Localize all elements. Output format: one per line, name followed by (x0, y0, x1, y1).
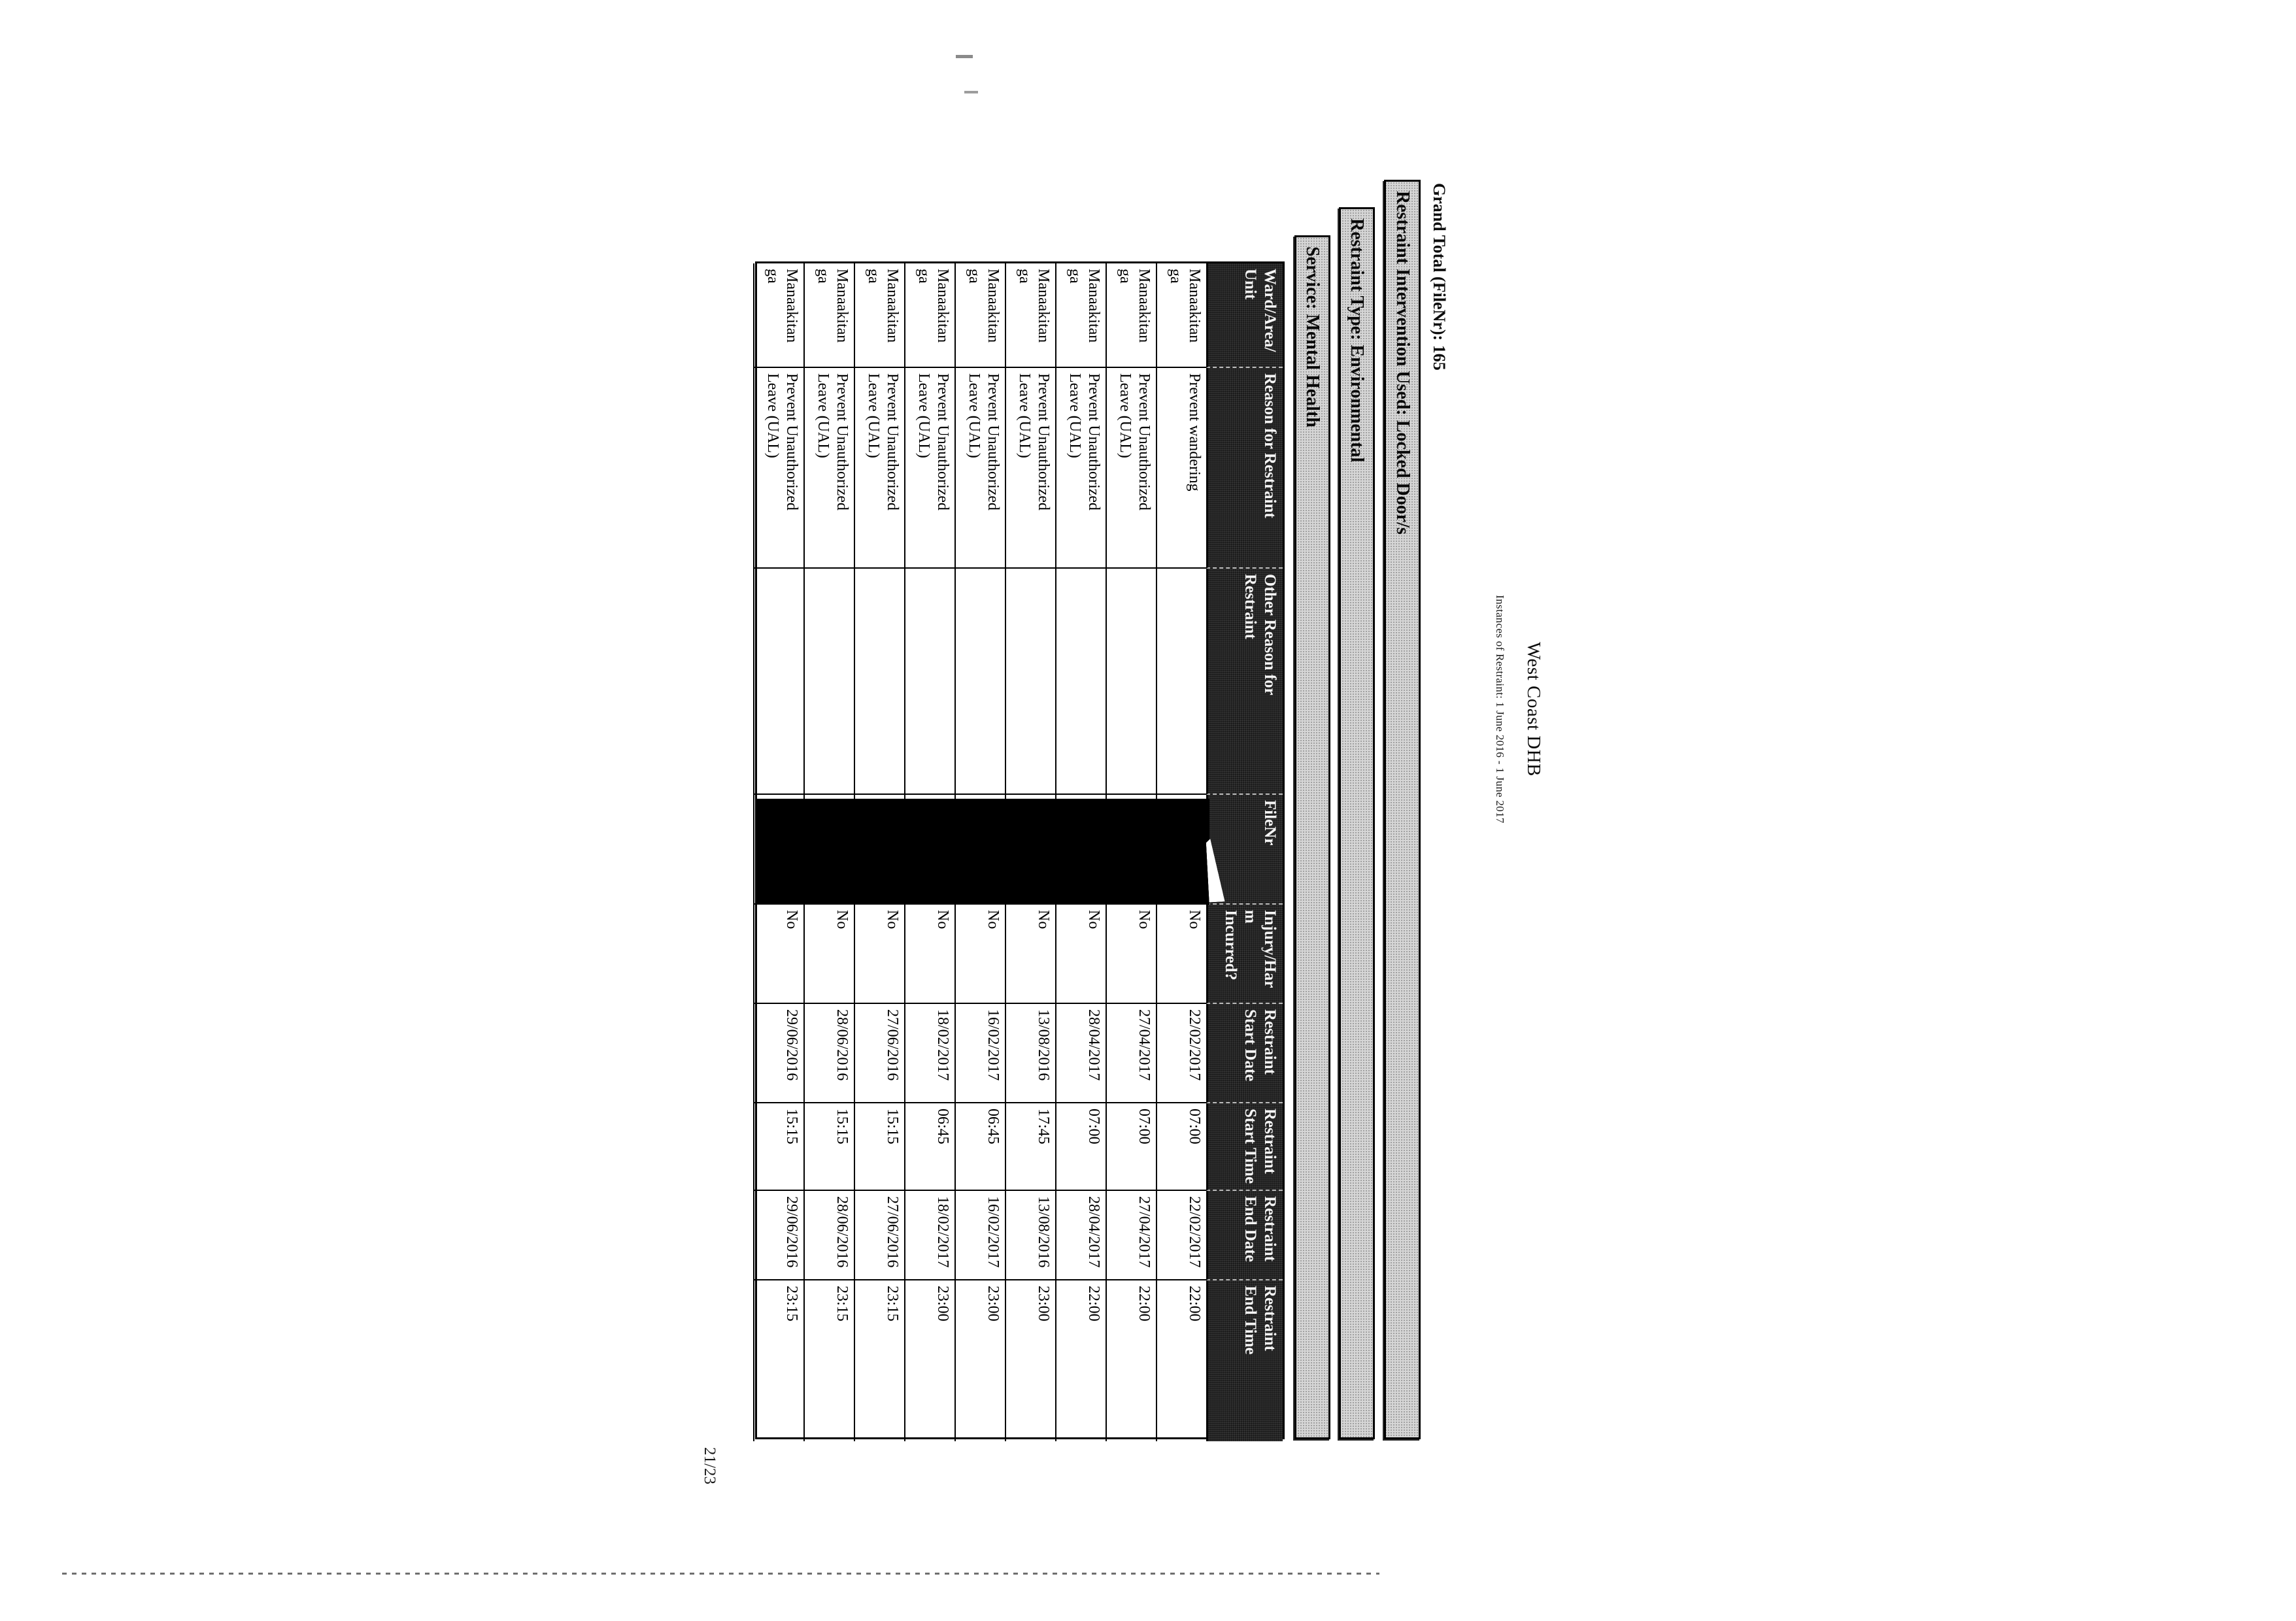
scanned-page: West Coast DHB Instances of Restraint: 1… (0, 0, 2296, 1621)
cell-ward-row4: Manaakitan ga (1005, 263, 1055, 368)
column-header-injury: Injury/Har m Incurred? (1206, 905, 1283, 1004)
column-header-reason: Reason for Restraint (1206, 368, 1283, 569)
cell-start_time-row2: 07:00 (1106, 1103, 1156, 1191)
grand-total-label: Grand Total (FileNr): 165 (1429, 183, 1449, 371)
cell-end_date-row8: 28/06/2016 (803, 1191, 854, 1280)
scan-artifact-dash (956, 55, 973, 58)
column-header-start_time: Restraint Start Time (1206, 1103, 1283, 1191)
cell-end_time-row8: 23:15 (803, 1280, 854, 1441)
column-header-end_date: Restraint End Date (1206, 1191, 1283, 1280)
cell-start_time-row7: 15:15 (854, 1103, 904, 1191)
cell-ward-row7: Manaakitan ga (854, 263, 904, 368)
cell-start_date-row4: 13/08/2016 (1005, 1004, 1055, 1103)
cell-other_reason-row5 (954, 569, 1005, 795)
cell-other_reason-row4 (1005, 569, 1055, 795)
cell-end_date-row1: 22/02/2017 (1156, 1191, 1206, 1280)
document-subtitle: Instances of Restraint: 1 June 2016 - 1 … (1493, 56, 1506, 1363)
cell-other_reason-row7 (854, 569, 904, 795)
cell-other_reason-row8 (803, 569, 854, 795)
column-header-end_time: Restraint End Time (1206, 1280, 1283, 1441)
cell-reason-row7: Prevent Unauthorized Leave (UAL) (854, 368, 904, 569)
group-header-service: Service: Mental Health (1294, 235, 1330, 1439)
cell-reason-row2: Prevent Unauthorized Leave (UAL) (1106, 368, 1156, 569)
cell-injury-row5: No (954, 905, 1005, 1004)
scan-artifact-dotted-line (62, 1573, 1379, 1575)
cell-end_date-row6: 18/02/2017 (904, 1191, 954, 1280)
cell-reason-row8: Prevent Unauthorized Leave (UAL) (803, 368, 854, 569)
group-header-restraint-intervention: Restraint Intervention Used: Locked Door… (1384, 180, 1421, 1439)
cell-reason-row3: Prevent Unauthorized Leave (UAL) (1055, 368, 1106, 569)
cell-ward-row3: Manaakitan ga (1055, 263, 1106, 368)
cell-injury-row7: No (854, 905, 904, 1004)
cell-start_time-row3: 07:00 (1055, 1103, 1106, 1191)
cell-end_time-row4: 23:00 (1005, 1280, 1055, 1441)
cell-injury-row1: No (1156, 905, 1206, 1004)
cell-other_reason-row9 (753, 569, 803, 795)
cell-ward-row9: Manaakitan ga (753, 263, 803, 368)
cell-injury-row9: No (753, 905, 803, 1004)
column-header-start_date: Restraint Start Date (1206, 1004, 1283, 1103)
cell-ward-row8: Manaakitan ga (803, 263, 854, 368)
cell-start_time-row4: 17:45 (1005, 1103, 1055, 1191)
document-title: West Coast DHB (1523, 56, 1544, 1363)
cell-other_reason-row6 (904, 569, 954, 795)
cell-end_date-row2: 27/04/2017 (1106, 1191, 1156, 1280)
cell-other_reason-row3 (1055, 569, 1106, 795)
cell-end_date-row9: 29/06/2016 (753, 1191, 803, 1280)
cell-end_time-row5: 23:00 (954, 1280, 1005, 1441)
cell-end_time-row6: 23:00 (904, 1280, 954, 1441)
redaction-block (757, 799, 1209, 905)
column-header-other_reason: Other Reason for Restraint (1206, 569, 1283, 795)
cell-start_date-row6: 18/02/2017 (904, 1004, 954, 1103)
cell-end_date-row5: 16/02/2017 (954, 1191, 1005, 1280)
cell-reason-row5: Prevent Unauthorized Leave (UAL) (954, 368, 1005, 569)
cell-start_date-row7: 27/06/2016 (854, 1004, 904, 1103)
page-number: 21/23 (700, 1447, 718, 1484)
cell-ward-row6: Manaakitan ga (904, 263, 954, 368)
cell-other_reason-row2 (1106, 569, 1156, 795)
cell-injury-row8: No (803, 905, 854, 1004)
cell-start_time-row8: 15:15 (803, 1103, 854, 1191)
cell-injury-row2: No (1106, 905, 1156, 1004)
cell-end_date-row7: 27/06/2016 (854, 1191, 904, 1280)
cell-injury-row6: No (904, 905, 954, 1004)
column-header-ward: Ward/Area/ Unit (1206, 263, 1283, 368)
cell-reason-row4: Prevent Unauthorized Leave (UAL) (1005, 368, 1055, 569)
scan-artifact-dash (964, 91, 978, 93)
cell-start_date-row8: 28/06/2016 (803, 1004, 854, 1103)
cell-start_time-row5: 06:45 (954, 1103, 1005, 1191)
cell-start_time-row6: 06:45 (904, 1103, 954, 1191)
cell-end_time-row9: 23:15 (753, 1280, 803, 1441)
cell-reason-row1: Prevent wandering (1156, 368, 1206, 569)
cell-start_date-row3: 28/04/2017 (1055, 1004, 1106, 1103)
cell-reason-row9: Prevent Unauthorized Leave (UAL) (753, 368, 803, 569)
cell-start_date-row1: 22/02/2017 (1156, 1004, 1206, 1103)
group-header-restraint-type: Restraint Type: Environmental (1339, 207, 1375, 1439)
cell-ward-row1: Manaakitan ga (1156, 263, 1206, 368)
cell-injury-row4: No (1005, 905, 1055, 1004)
cell-start_date-row2: 27/04/2017 (1106, 1004, 1156, 1103)
document-content-rotated: West Coast DHB Instances of Restraint: 1… (0, 0, 2296, 1621)
cell-ward-row5: Manaakitan ga (954, 263, 1005, 368)
cell-start_date-row9: 29/06/2016 (753, 1004, 803, 1103)
cell-other_reason-row1 (1156, 569, 1206, 795)
cell-end_date-row4: 13/08/2016 (1005, 1191, 1055, 1280)
cell-end_date-row3: 28/04/2017 (1055, 1191, 1106, 1280)
cell-end_time-row3: 22:00 (1055, 1280, 1106, 1441)
cell-ward-row2: Manaakitan ga (1106, 263, 1156, 368)
cell-start_time-row1: 07:00 (1156, 1103, 1206, 1191)
cell-injury-row3: No (1055, 905, 1106, 1004)
cell-end_time-row2: 22:00 (1106, 1280, 1156, 1441)
cell-end_time-row1: 22:00 (1156, 1280, 1206, 1441)
cell-start_time-row9: 15:15 (753, 1103, 803, 1191)
cell-reason-row6: Prevent Unauthorized Leave (UAL) (904, 368, 954, 569)
cell-end_time-row7: 23:15 (854, 1280, 904, 1441)
cell-start_date-row5: 16/02/2017 (954, 1004, 1005, 1103)
